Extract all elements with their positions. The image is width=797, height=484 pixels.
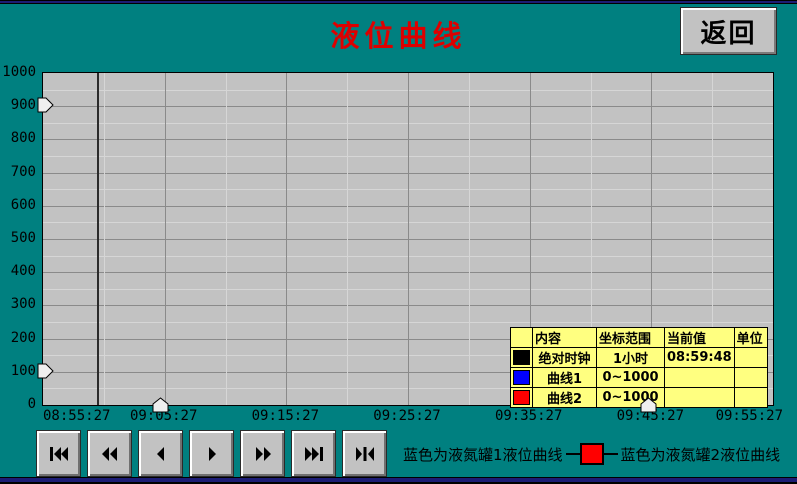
clock-swatch xyxy=(513,350,530,365)
y-tick-label: 1000 xyxy=(0,64,36,80)
y-tick-label: 400 xyxy=(0,263,36,279)
legend-curve1-text: 蓝色为液氮罐1液位曲线 xyxy=(403,444,563,465)
header-swatch xyxy=(511,328,533,348)
gridline-v-minor xyxy=(104,73,105,405)
gridline-v-minor xyxy=(469,73,470,405)
row-unit xyxy=(734,388,767,408)
legend-square-icon xyxy=(580,443,604,465)
y-axis: 01002003004005006007008009001000 xyxy=(0,72,38,404)
x-axis-handle[interactable] xyxy=(152,397,169,413)
bottom-legend: 蓝色为液氮罐1液位曲线 蓝色为液氮罐2液位曲线 xyxy=(403,440,795,468)
y-tick-label: 500 xyxy=(0,230,36,246)
header-content: 内容 xyxy=(533,328,597,348)
table-row: 绝对时钟 1小时 08:59:48 xyxy=(511,348,768,368)
y-tick-label: 100 xyxy=(0,363,36,379)
gridline-v-major xyxy=(408,73,409,405)
row-current xyxy=(665,368,735,388)
x-tick-label: 08:55:27 xyxy=(43,408,110,424)
time-cursor-line[interactable] xyxy=(97,73,99,405)
y-tick-label: 0 xyxy=(0,396,36,412)
x-axis-handle[interactable] xyxy=(640,397,657,413)
legend-curve2-text: 蓝色为液氮罐2液位曲线 xyxy=(621,444,781,465)
back-button[interactable]: 返回 xyxy=(680,7,777,55)
nav-skip-to-end-button[interactable] xyxy=(291,430,336,477)
legend-marker xyxy=(566,442,618,466)
double-left-icon xyxy=(100,447,120,461)
y-axis-handle[interactable] xyxy=(37,97,54,113)
y-axis-handle[interactable] xyxy=(37,363,54,379)
row-range: 0~1000 xyxy=(597,368,665,388)
right-bar-left-icon xyxy=(355,447,375,461)
y-tick-label: 800 xyxy=(0,130,36,146)
x-tick-label: 09:35:27 xyxy=(495,408,562,424)
table-row: 曲线2 0~1000 xyxy=(511,388,768,408)
page-title: 液位曲线 xyxy=(0,13,797,55)
x-tick-label: 09:55:27 xyxy=(716,408,783,424)
slider-arrow-up-icon xyxy=(152,397,169,413)
top-border-strip xyxy=(0,0,797,4)
row-content: 绝对时钟 xyxy=(533,348,597,368)
y-tick-label: 900 xyxy=(0,97,36,113)
nav-step-backward-button[interactable] xyxy=(138,430,183,477)
trend-nav-toolbar xyxy=(36,430,387,477)
nav-skip-to-start-button[interactable] xyxy=(36,430,81,477)
header-unit: 单位 xyxy=(734,328,767,348)
back-button-label: 返回 xyxy=(700,13,756,50)
y-tick-label: 600 xyxy=(0,197,36,213)
y-tick-label: 200 xyxy=(0,330,36,346)
curve1-swatch xyxy=(513,370,530,385)
y-tick-label: 700 xyxy=(0,164,36,180)
double-right-icon xyxy=(253,447,273,461)
nav-fast-forward-button[interactable] xyxy=(240,430,285,477)
x-tick-label: 09:25:27 xyxy=(373,408,440,424)
right-icon xyxy=(202,447,222,461)
y-tick-label: 300 xyxy=(0,296,36,312)
row-content: 曲线2 xyxy=(533,388,597,408)
nav-jump-to-cursor-button[interactable] xyxy=(342,430,387,477)
slider-arrow-up-icon xyxy=(640,397,657,413)
curve2-swatch xyxy=(513,390,530,405)
header-current: 当前值 xyxy=(665,328,735,348)
slider-arrow-right-icon xyxy=(37,97,54,113)
bar-double-left-icon xyxy=(49,447,69,461)
gridline-v-major xyxy=(286,73,287,405)
header-range: 坐标范围 xyxy=(597,328,665,348)
x-tick-label: 09:15:27 xyxy=(252,408,319,424)
trend-value-table: 内容 坐标范围 当前值 单位 绝对时钟 1小时 08:59:48 曲线1 0~1… xyxy=(510,327,768,408)
table-row: 曲线1 0~1000 xyxy=(511,368,768,388)
hmi-screen: { "header": { "title": "液位曲线", "back_but… xyxy=(0,0,797,484)
slider-arrow-right-icon xyxy=(37,363,54,379)
row-unit xyxy=(734,348,767,368)
double-right-bar-icon xyxy=(304,447,324,461)
table-header-row: 内容 坐标范围 当前值 单位 xyxy=(511,328,768,348)
row-content: 曲线1 xyxy=(533,368,597,388)
row-unit xyxy=(734,368,767,388)
nav-fast-backward-button[interactable] xyxy=(87,430,132,477)
row-range: 1小时 xyxy=(597,348,665,368)
row-current xyxy=(665,388,735,408)
row-current: 08:59:48 xyxy=(665,348,735,368)
gridline-v-minor xyxy=(226,73,227,405)
gridline-v-major xyxy=(165,73,166,405)
bottom-border-strip xyxy=(0,477,797,484)
left-icon xyxy=(151,447,171,461)
gridline-v-minor xyxy=(347,73,348,405)
nav-step-forward-button[interactable] xyxy=(189,430,234,477)
